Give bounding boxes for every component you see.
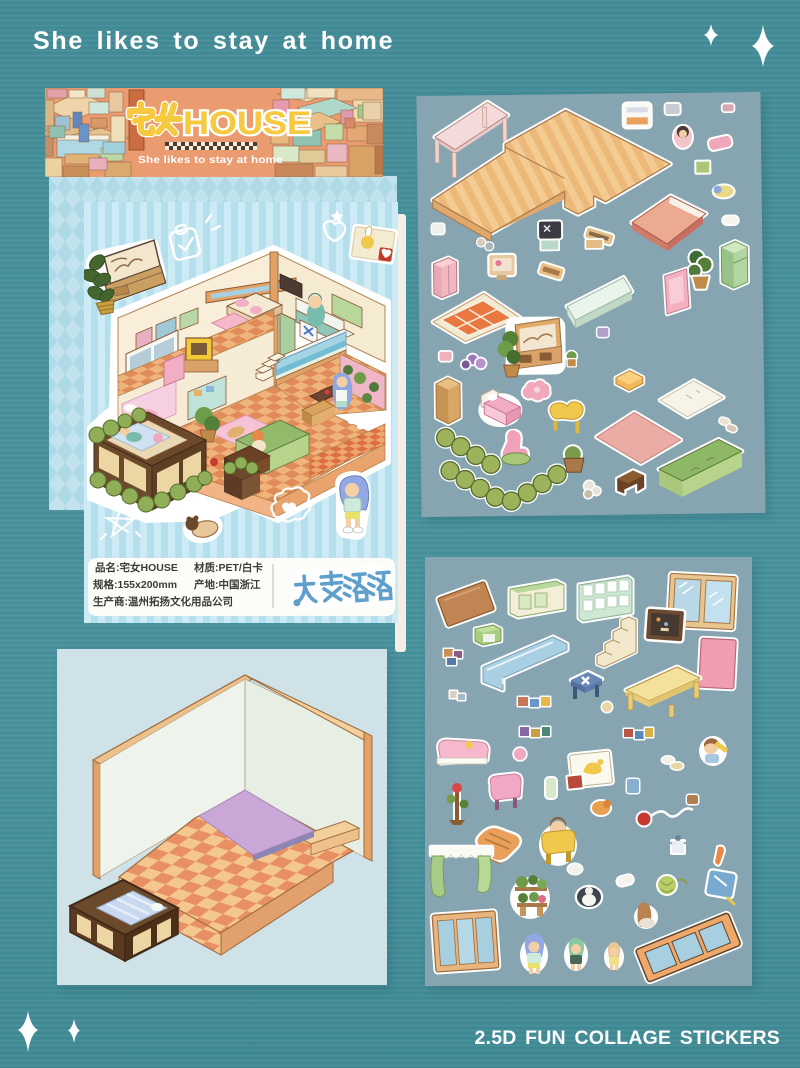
svg-text:品名:宅女HOUSE: 品名:宅女HOUSE	[95, 561, 178, 574]
svg-text:材质:PET/白卡: 材质:PET/白卡	[193, 561, 263, 574]
svg-text:生产商:温州拓扬文化用品公司: 生产商:温州拓扬文化用品公司	[93, 595, 233, 608]
svg-text:She likes to stay at home: She likes to stay at home	[138, 154, 283, 166]
svg-text:产地:中国浙江: 产地:中国浙江	[194, 578, 261, 591]
svg-text:HOUSE: HOUSE	[183, 105, 311, 141]
svg-text:规格:155x200mm: 规格:155x200mm	[93, 578, 177, 591]
